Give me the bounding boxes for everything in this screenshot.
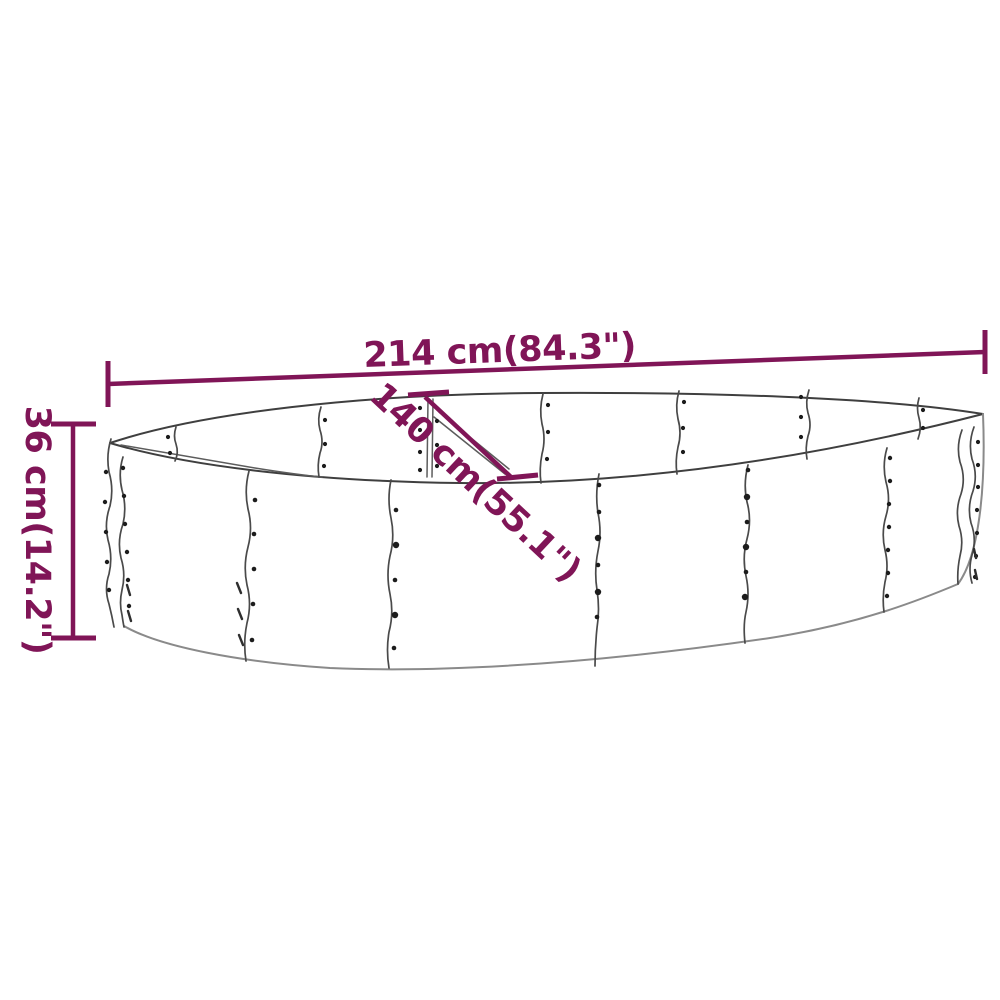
width-dimension-label: 140 cm(55.1") xyxy=(362,375,589,590)
bed-rim-front-edge xyxy=(110,414,983,483)
width-dimension-cap-bottom xyxy=(497,475,538,479)
bed-rim-back-edge xyxy=(110,393,983,443)
height-dimension-label: 36 cm(14.2") xyxy=(17,406,57,655)
product-dimension-image: 214 cm(84.3") 36 cm(14.2") 140 cm(55.1") xyxy=(0,0,1000,1000)
bed-left-edge-seam-inner xyxy=(119,457,124,627)
bed-rim-inner-lip xyxy=(121,445,322,477)
length-dimension: 214 cm(84.3") xyxy=(108,326,985,407)
width-dimension-cap-top xyxy=(408,392,449,395)
dimension-diagram-svg: 214 cm(84.3") 36 cm(14.2") 140 cm(55.1") xyxy=(0,0,1000,1000)
length-dimension-label: 214 cm(84.3") xyxy=(363,326,637,376)
bed-front-panel-seams xyxy=(245,427,976,668)
height-dimension: 36 cm(14.2") xyxy=(17,406,96,655)
width-dimension: 140 cm(55.1") xyxy=(362,375,589,590)
